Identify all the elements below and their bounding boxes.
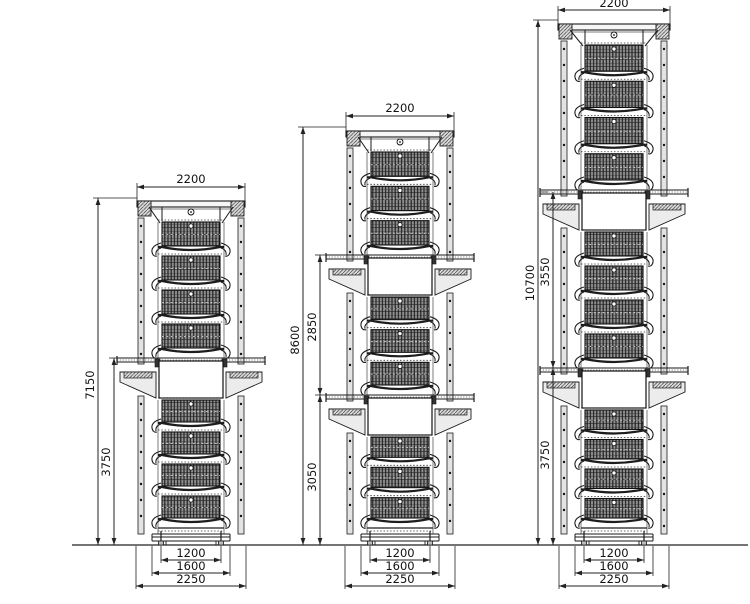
svg-text:2250: 2250	[385, 572, 414, 586]
svg-text:1200: 1200	[176, 546, 205, 560]
svg-text:2250: 2250	[599, 572, 628, 586]
svg-text:2850: 2850	[305, 312, 319, 341]
svg-text:1600: 1600	[599, 559, 628, 573]
svg-text:1600: 1600	[385, 559, 414, 573]
svg-text:10700: 10700	[523, 265, 537, 302]
drawing-canvas: 2200715037501200160022502200860028503050…	[0, 0, 750, 604]
tower-left-two-unit-4-tier	[117, 201, 265, 545]
svg-text:8600: 8600	[288, 325, 302, 354]
svg-text:3550: 3550	[538, 257, 552, 286]
svg-text:3750: 3750	[538, 440, 552, 469]
svg-text:7150: 7150	[83, 370, 97, 399]
battery-cage-elevation-drawing: 2200715037501200160022502200860028503050…	[0, 0, 750, 604]
svg-text:3750: 3750	[99, 447, 113, 476]
svg-text:1200: 1200	[385, 546, 414, 560]
svg-text:2200: 2200	[599, 0, 628, 10]
svg-text:2200: 2200	[176, 172, 205, 186]
svg-text:1200: 1200	[599, 546, 628, 560]
tower-right-three-unit-4-tier	[540, 24, 688, 545]
svg-text:2250: 2250	[176, 572, 205, 586]
svg-text:2200: 2200	[385, 101, 414, 115]
svg-text:1600: 1600	[176, 559, 205, 573]
svg-text:3050: 3050	[305, 462, 319, 491]
tower-middle-three-unit-3-tier	[326, 131, 474, 545]
